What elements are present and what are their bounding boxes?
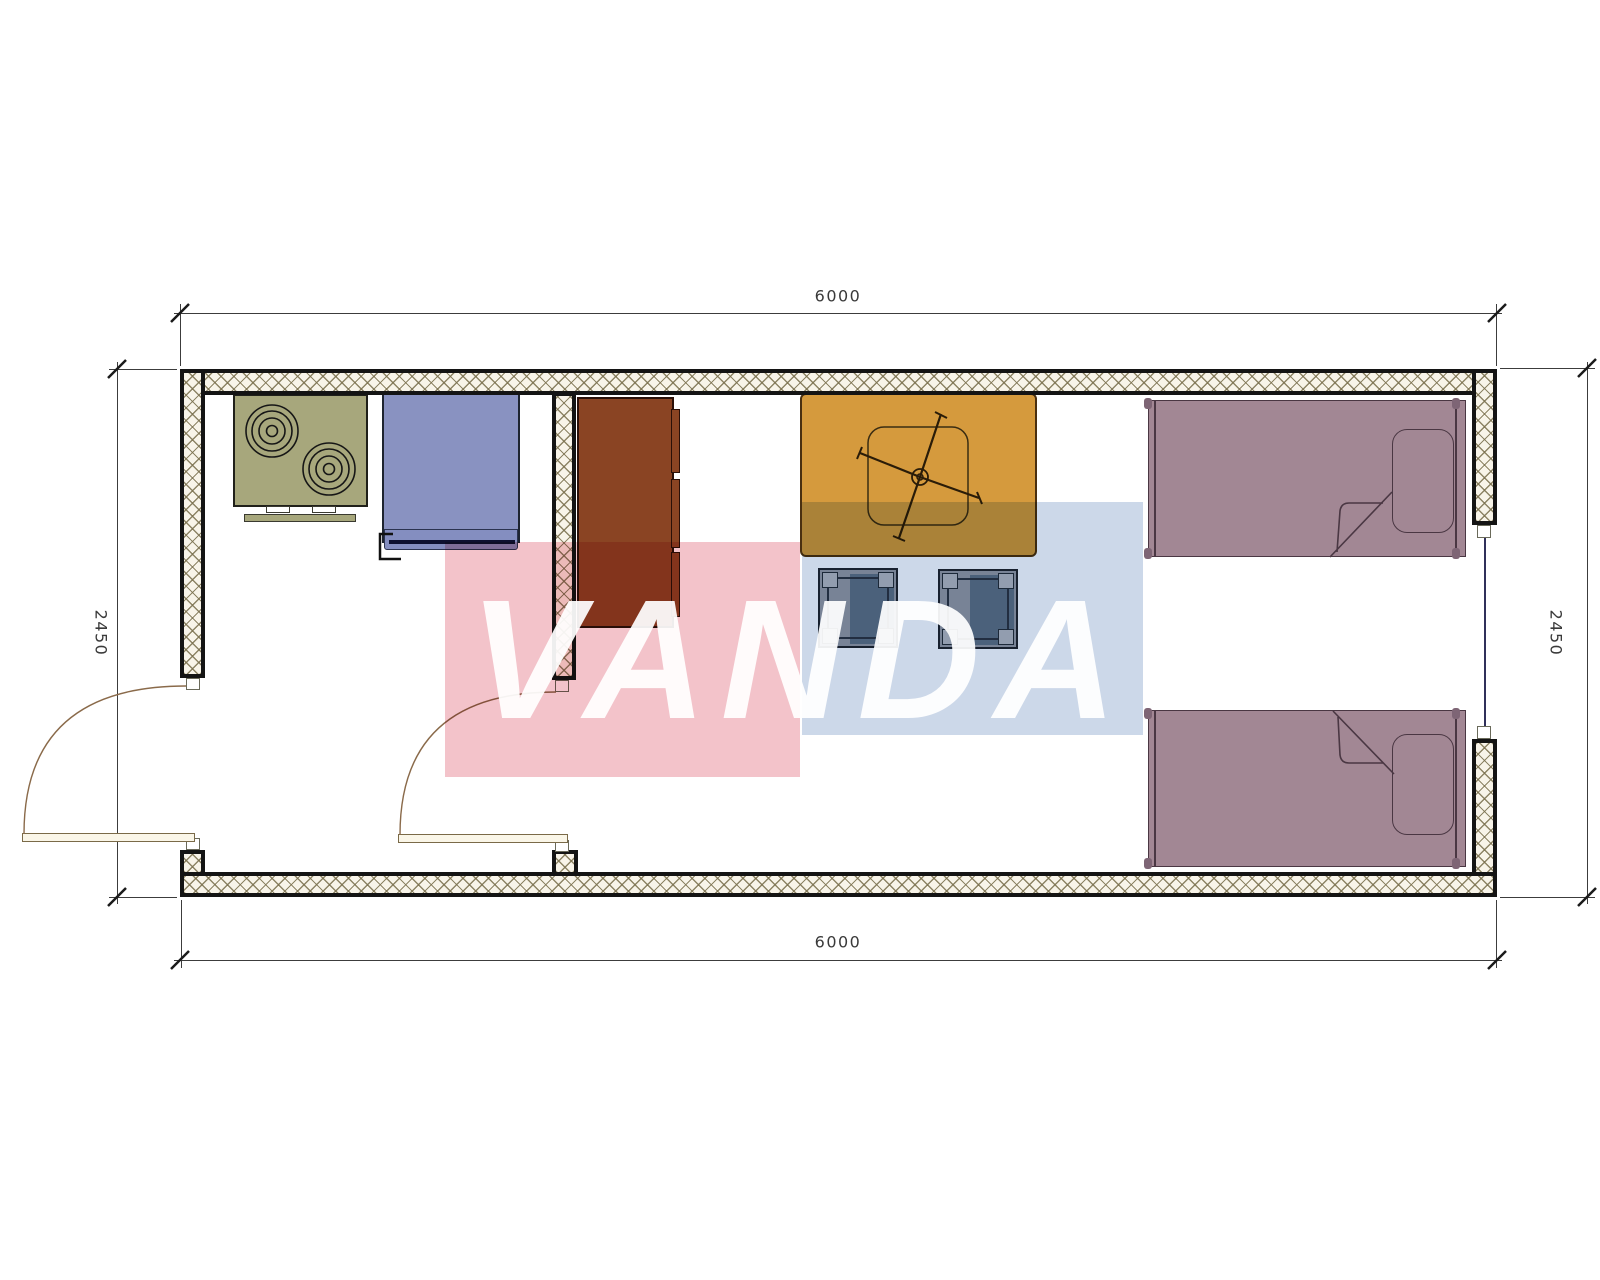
- blanket-fold: [1330, 492, 1394, 774]
- floor-plan-canvas: 6000 6000 2450 2450: [0, 0, 1600, 1280]
- burner-icon: [246, 405, 355, 495]
- watermark-text: VANDA: [455, 572, 1145, 747]
- sink-drain-icon: [380, 534, 401, 559]
- door-swing-arc: [24, 686, 186, 834]
